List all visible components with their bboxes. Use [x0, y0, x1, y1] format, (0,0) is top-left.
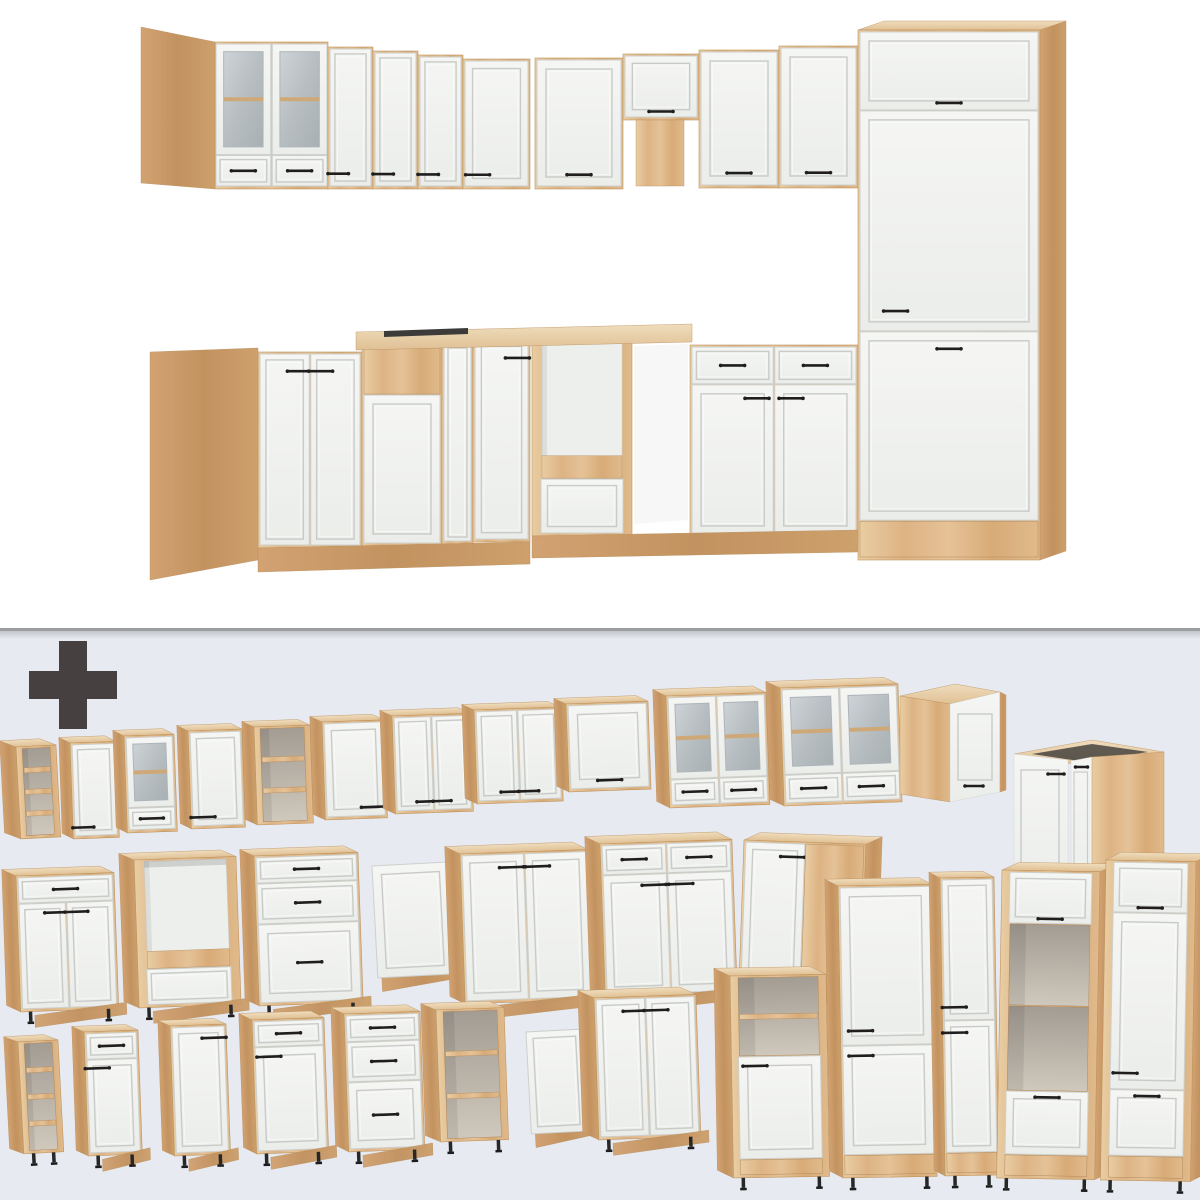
base-filler-panel: [442, 342, 473, 544]
hood-chimney-panel: [636, 120, 684, 186]
wall-cabinet-door-5: [535, 58, 623, 189]
tall-cabinet-30-2door: [929, 871, 1000, 1189]
tall-shelf-cabinet-60: [714, 966, 830, 1190]
wall-cabinet-door-1: [326, 47, 373, 189]
wall-end-panel: [141, 27, 215, 189]
tall-fridge-housing-60: [1100, 852, 1200, 1194]
base-cabinet-2drawer-2door: [690, 345, 858, 538]
base-cabinet-2door: [258, 352, 362, 548]
wall-flap-cabinet-60: [554, 695, 651, 792]
section-divider: [0, 628, 1200, 631]
base-open-shelf-15: [4, 1034, 65, 1167]
base-open-shelf-40: [421, 1001, 509, 1155]
wall-cabinet-30: [59, 735, 120, 839]
base-cabinet-40-drawer-door: [239, 1010, 337, 1170]
scene-canvas: [0, 0, 1200, 1200]
wall-corner-cabinet: [900, 684, 1006, 802]
wall-cabinet-door-7: [779, 46, 858, 188]
tall-unit-column: [858, 21, 1066, 560]
tall-cabinet-60-2door: [825, 877, 937, 1190]
base-cabinet-60-2door: [578, 986, 710, 1156]
wall-open-shelf-15: [0, 738, 61, 840]
wall-glass-cabinet-80-2door: [766, 677, 902, 807]
component-cabinets: [0, 677, 1200, 1194]
base-drawer-cabinet-60: [240, 845, 372, 1022]
wall-cabinet-60-2door: [380, 707, 474, 814]
wall-glass-cabinet-60-2door: [653, 686, 770, 809]
base-corner-door: [473, 338, 531, 542]
base-run-left: [150, 338, 531, 580]
kitchen-set-product-image: [0, 0, 1200, 1200]
tall-fridge-housing-assembled: [858, 21, 1066, 560]
wall-cabinet-door-2: [371, 51, 418, 189]
wall-glass-cabinet-2door: [215, 42, 328, 189]
tall-oven-tower-60: [996, 862, 1117, 1192]
base-sink-cabinet: [362, 346, 442, 546]
base-oven-housing-assembled: [532, 336, 632, 536]
dishwasher-gap: [634, 344, 688, 524]
base-end-panel: [150, 348, 258, 580]
wall-cabinet-door-3: [416, 55, 463, 189]
base-oven-housing-60: [119, 849, 250, 1024]
wall-cabinet-50: [310, 714, 388, 821]
wall-cabinet-80-2door: [462, 701, 563, 804]
wall-cabinet-door-6: [699, 50, 779, 188]
wall-cabinet-door-4: [463, 59, 530, 189]
wall-glass-cabinet-30: [113, 728, 178, 833]
wall-open-shelf-50: [242, 719, 314, 825]
base-cabinet-60-drawer-2door: [2, 865, 127, 1028]
divider-shadow: [0, 631, 1200, 639]
wall-flap-cabinet-hood: [623, 54, 699, 120]
base-drawer-cabinet-40: [331, 1004, 434, 1168]
wall-cabinet-45: [177, 723, 246, 829]
